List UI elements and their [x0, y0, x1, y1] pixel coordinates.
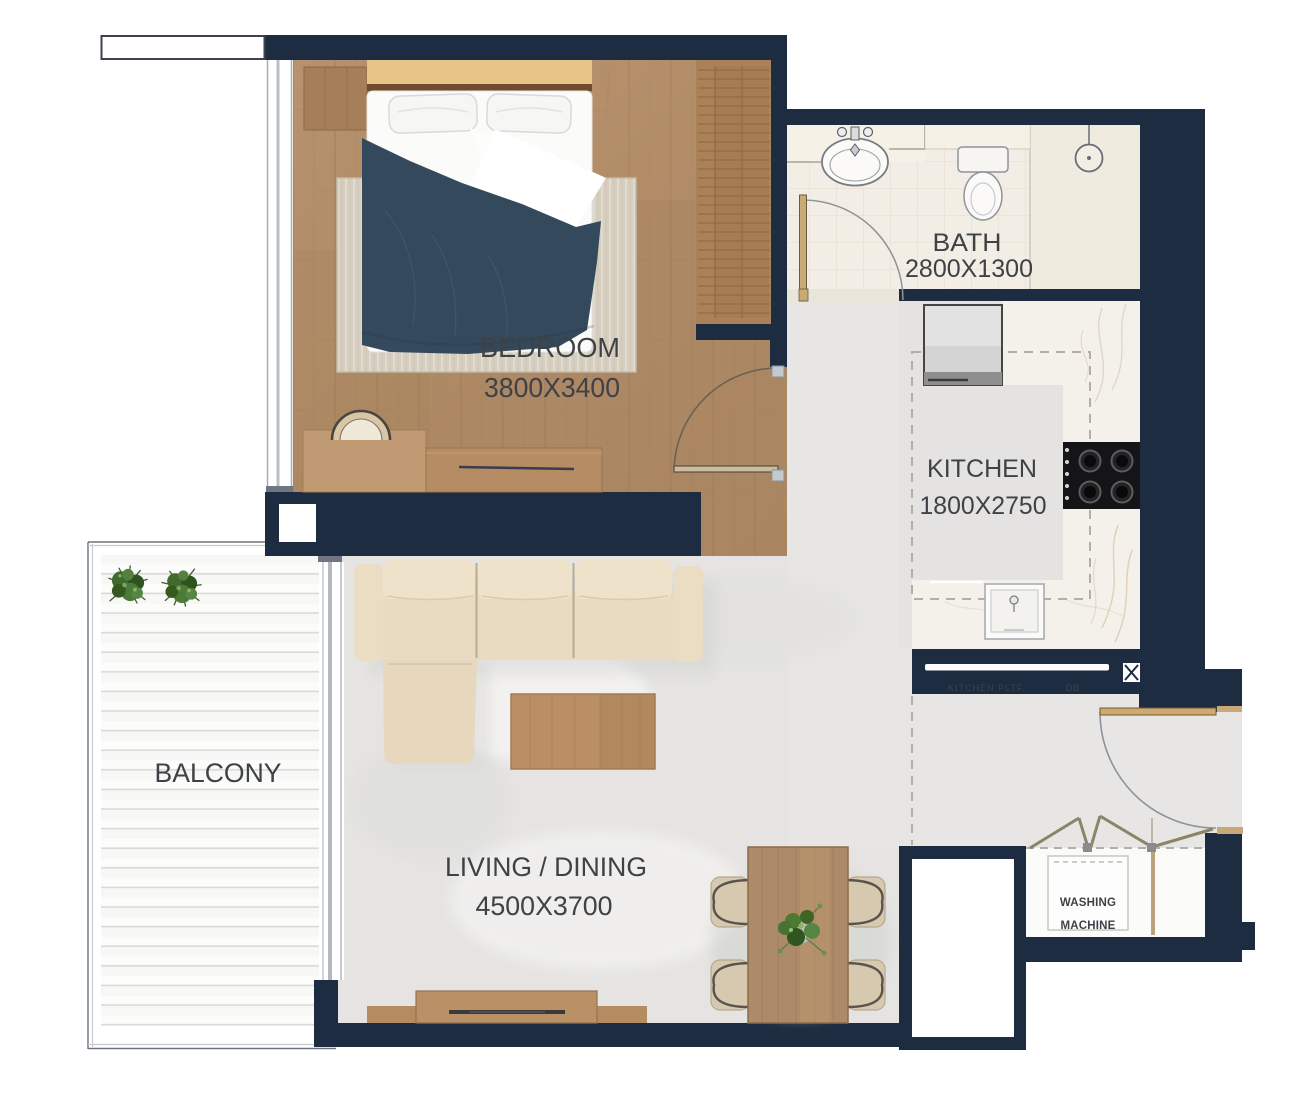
- svg-text:MACHINE: MACHINE: [1060, 920, 1115, 932]
- svg-text:DB: DB: [1066, 683, 1081, 693]
- svg-text:1800X2750: 1800X2750: [920, 492, 1047, 520]
- svg-text:KITCHEN: KITCHEN: [927, 455, 1037, 483]
- svg-text:BALCONY: BALCONY: [155, 758, 282, 788]
- svg-text:3800X3400: 3800X3400: [484, 372, 620, 403]
- svg-text:LIVING / DINING: LIVING / DINING: [445, 852, 647, 882]
- svg-text:BEDROOM: BEDROOM: [480, 332, 620, 363]
- svg-text:2800X1300: 2800X1300: [905, 255, 1033, 283]
- svg-text:KITCHEN PLTF.: KITCHEN PLTF.: [948, 683, 1026, 693]
- svg-text:BATH: BATH: [933, 229, 1002, 257]
- svg-text:WASHING: WASHING: [1060, 897, 1116, 909]
- svg-text:4500X3700: 4500X3700: [476, 891, 613, 921]
